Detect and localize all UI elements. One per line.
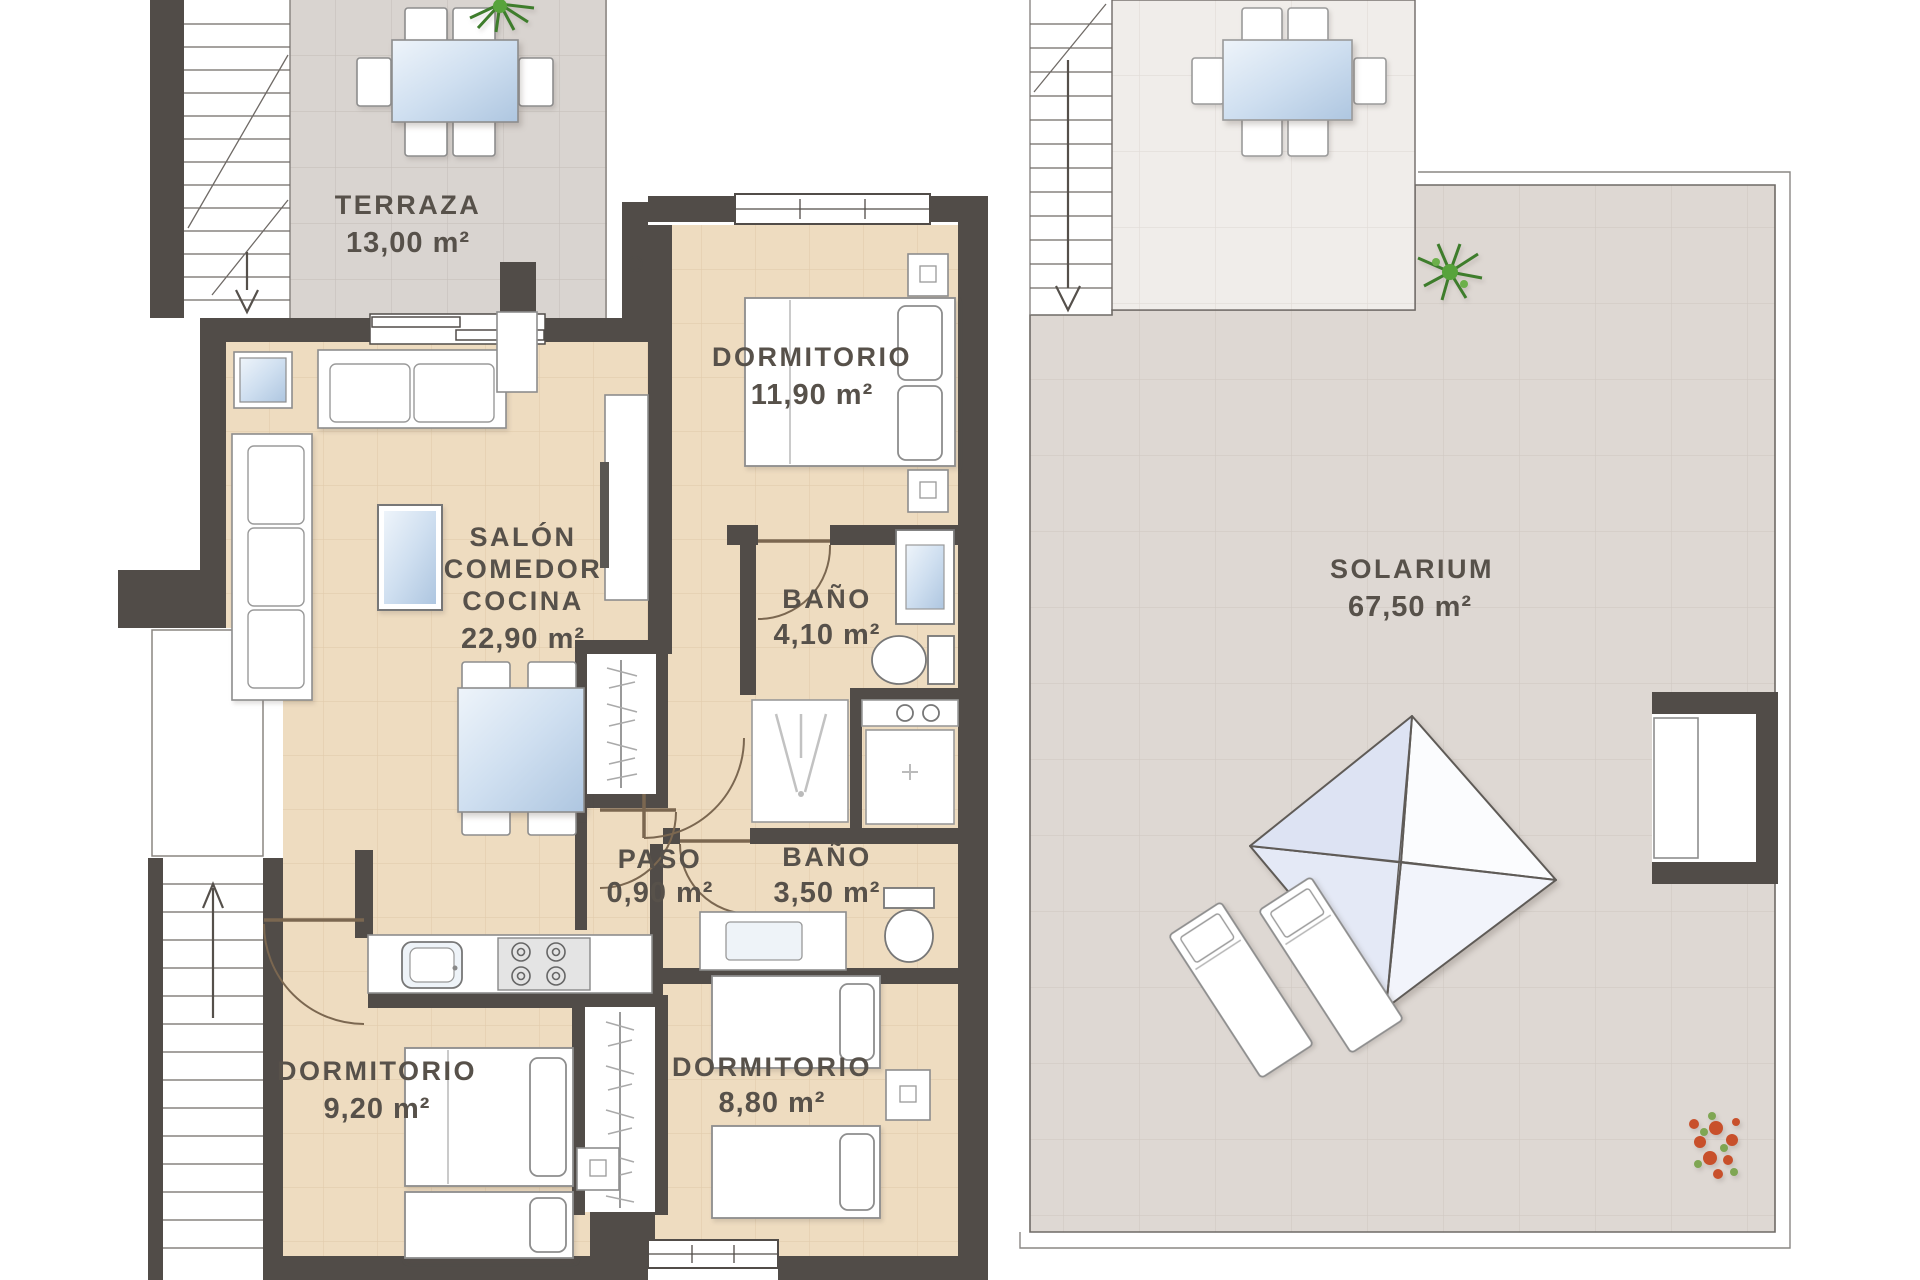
washer-utility-icon [862, 700, 958, 824]
toilet-icon [884, 888, 934, 962]
room-paso-area: 0,90 m² [607, 877, 714, 909]
room-bano-2-label: BAÑO [782, 841, 872, 872]
chair-icon [519, 58, 553, 106]
room-dormitorio-2-area: 9,20 m² [324, 1093, 431, 1125]
floor-plan-drawing: TERRAZA 13,00 m² SALÓN COMEDOR COCINA 22… [0, 0, 1920, 1280]
room-terraza-area: 13,00 m² [346, 227, 470, 259]
room-salon-area: 22,90 m² [461, 623, 585, 655]
shower-icon [752, 700, 848, 822]
dining-table-icon [458, 688, 584, 812]
room-paso-label: PASO [618, 844, 703, 874]
sofa-icon [232, 434, 312, 700]
room-bano-1-label: BAÑO [782, 583, 872, 614]
chair-icon [1354, 58, 1386, 104]
stairs-solarium-arrow-icon [1056, 60, 1080, 310]
cooktop-icon [498, 938, 590, 990]
tv-unit-icon [600, 395, 648, 600]
sink-icon [402, 942, 462, 988]
dining-table-icon [1223, 40, 1352, 120]
room-dormitorio-3-area: 8,80 m² [719, 1087, 826, 1119]
room-salon-label-1: SALÓN [470, 521, 577, 552]
dining-table-icon [392, 40, 518, 122]
room-terraza-label: TERRAZA [335, 190, 482, 220]
kitchen-counter-icon [368, 935, 652, 993]
pillow-icon [840, 1134, 874, 1210]
single-bed-icon [712, 1126, 880, 1218]
floor-plan-page: TERRAZA 13,00 m² SALÓN COMEDOR COCINA 22… [0, 0, 1920, 1280]
chair-icon [1192, 58, 1224, 104]
salon-dining-set [458, 662, 584, 835]
room-dormitorio-1-area: 11,90 m² [751, 379, 873, 411]
closet-icon [587, 654, 656, 794]
pillow-icon [898, 386, 942, 460]
room-bano-1-area: 4,10 m² [774, 619, 881, 651]
right-plan-solarium: SOLARIUM 67,50 m² [1020, 0, 1790, 1248]
chair-icon [357, 58, 391, 106]
room-dormitorio-2-label: DORMITORIO [277, 1056, 477, 1086]
pillow-icon [840, 984, 874, 1060]
nightstand-icon [577, 1148, 619, 1190]
washbasin-icon [896, 530, 954, 624]
room-dormitorio-1-label: DORMITORIO [712, 342, 912, 372]
nightstand-icon [908, 470, 948, 512]
room-solarium-area: 67,50 m² [1348, 591, 1472, 623]
left-plan-apartment: TERRAZA 13,00 m² SALÓN COMEDOR COCINA 22… [118, 0, 988, 1280]
structure-panel [1654, 718, 1698, 858]
cabinet-icon [497, 312, 537, 392]
room-salon-label-2: COMEDOR [444, 554, 603, 584]
room-salon-label-3: COCINA [462, 586, 584, 616]
room-solarium-label: SOLARIUM [1330, 554, 1494, 584]
room-bano-2-area: 3,50 m² [774, 877, 881, 909]
stairs-solarium-icon [1030, 4, 1112, 288]
coffee-table-icon [378, 505, 442, 610]
single-bed-icon [405, 1192, 573, 1258]
vanity-sink-icon [700, 912, 846, 970]
stairs-upper-left-icon [184, 24, 290, 300]
sofa-icon [318, 350, 506, 428]
pillow-icon [530, 1058, 566, 1176]
nightstand-icon [908, 254, 948, 296]
pillow-icon [530, 1198, 566, 1252]
window-dormitorio-3-icon [648, 1240, 778, 1268]
toilet-icon [872, 636, 954, 684]
rooftop-structure [1652, 692, 1778, 884]
nightstand-icon [886, 1070, 930, 1120]
window-dormitorio-1-icon [735, 194, 930, 224]
side-table-icon [234, 352, 292, 408]
room-dormitorio-3-label: DORMITORIO [672, 1052, 872, 1082]
